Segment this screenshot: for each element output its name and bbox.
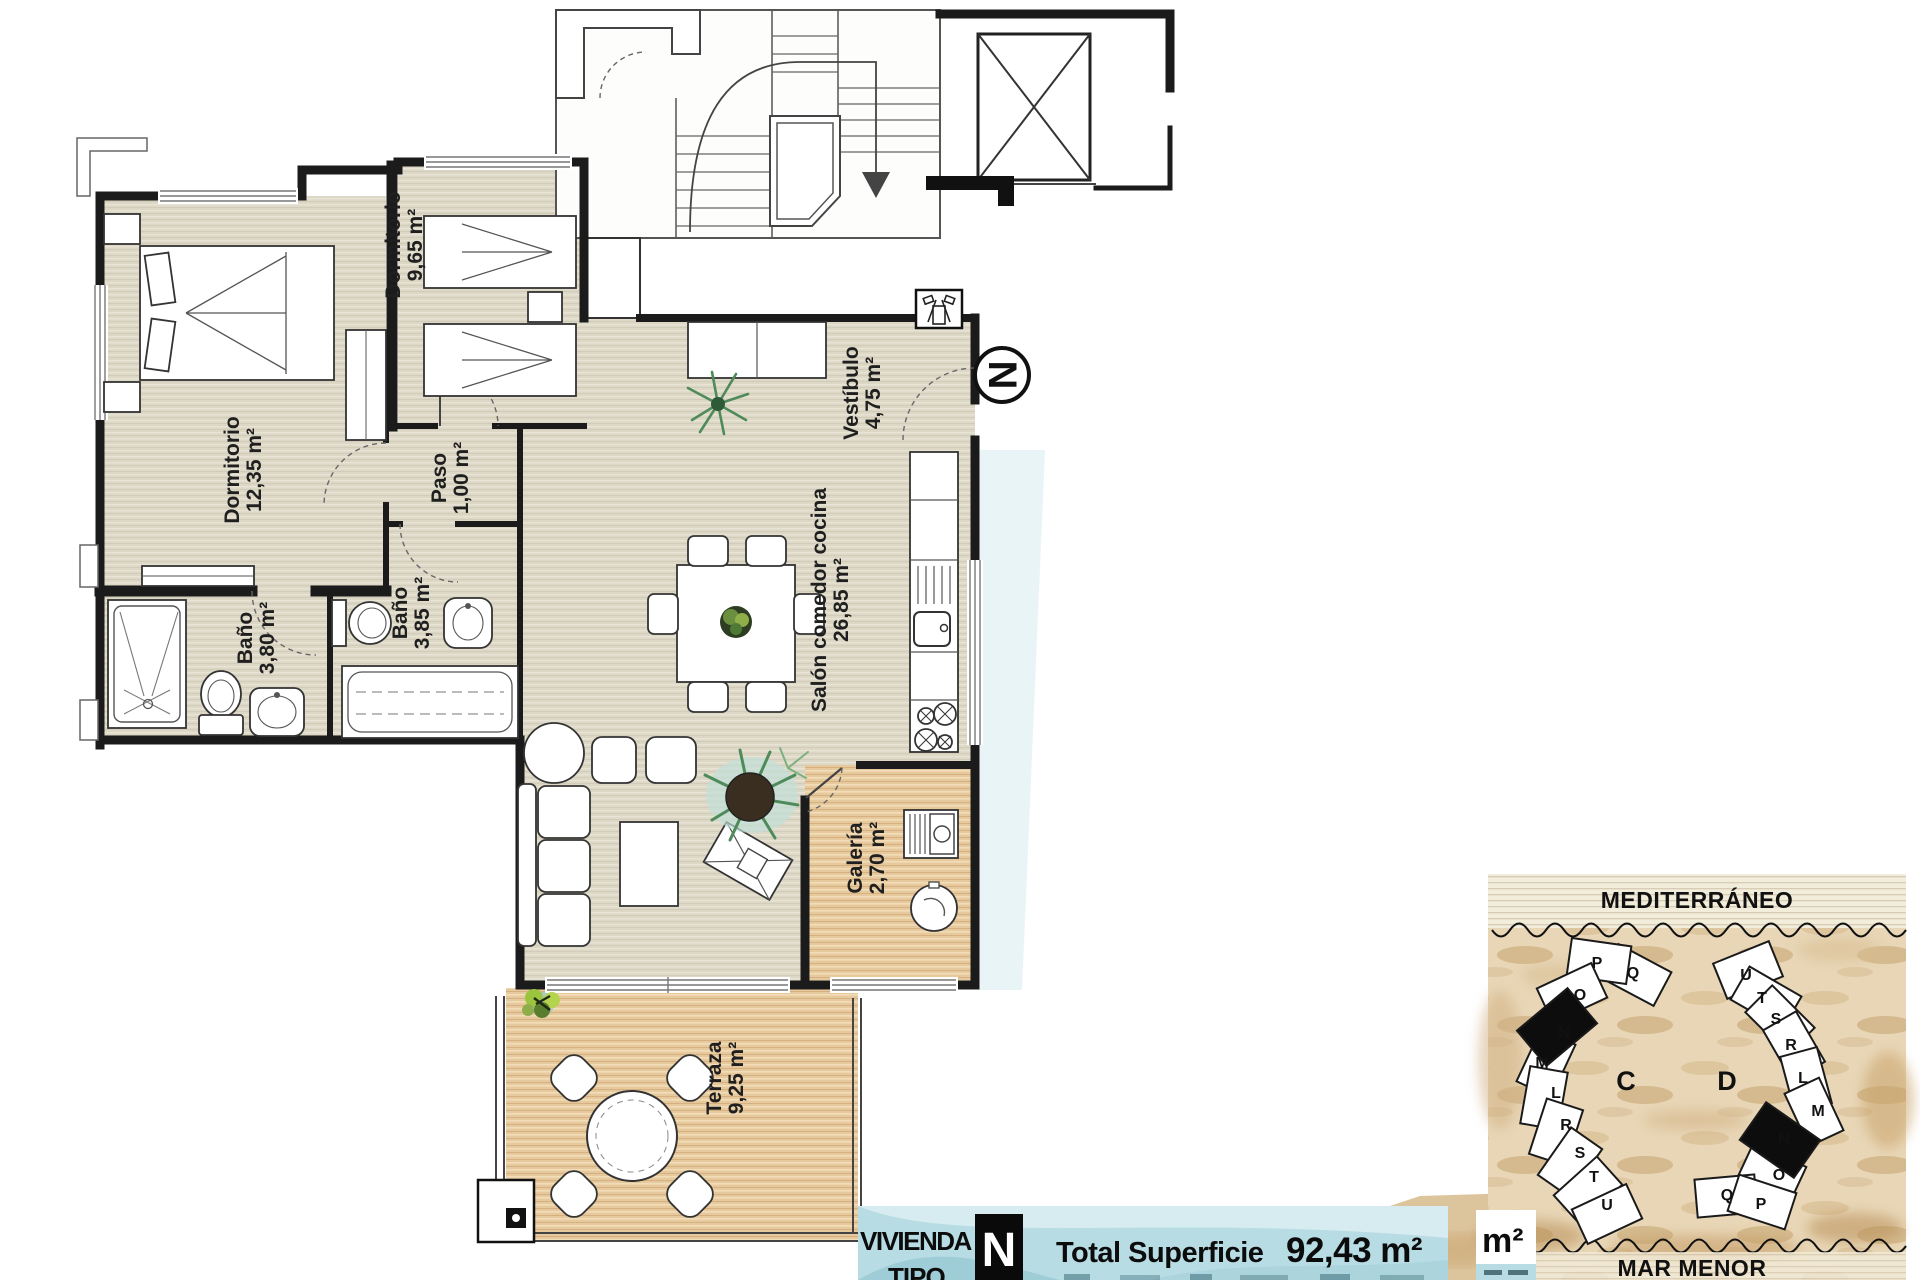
bathtub bbox=[342, 666, 518, 738]
armchair bbox=[592, 737, 636, 783]
chair bbox=[688, 536, 728, 566]
elevator bbox=[926, 14, 1170, 206]
svg-text:N: N bbox=[1558, 1025, 1570, 1042]
svg-text:T: T bbox=[1589, 1169, 1599, 1186]
svg-text:L: L bbox=[1798, 1070, 1808, 1087]
type-letter: N bbox=[982, 1224, 1017, 1277]
svg-text:Q: Q bbox=[1721, 1187, 1733, 1204]
label-master-bedroom: Dormitorio12,35 m² bbox=[221, 416, 266, 523]
label-terraza: Terraza9,25 m² bbox=[703, 1041, 748, 1114]
building-d-label: D bbox=[1717, 1066, 1737, 1096]
total-superficie-value: 92,43 m² bbox=[1286, 1231, 1422, 1270]
coffee-table bbox=[620, 822, 678, 906]
svg-text:L: L bbox=[1551, 1085, 1561, 1102]
chair bbox=[746, 536, 786, 566]
svg-text:O: O bbox=[1773, 1167, 1785, 1184]
svg-text:M: M bbox=[1535, 1055, 1548, 1072]
chair bbox=[648, 594, 678, 634]
kitchen bbox=[910, 452, 958, 752]
stair-core bbox=[556, 10, 940, 238]
site-plan: MEDITERRÁNEO MAR MENOR P Q O N M L R S T… bbox=[1475, 874, 1914, 1280]
banner-word-tipo: TIPO bbox=[888, 1262, 945, 1280]
label-vestibulo: Vestíbulo4,75 m² bbox=[840, 346, 885, 439]
side-table bbox=[524, 723, 584, 783]
terrace-table bbox=[587, 1091, 677, 1181]
nightstand bbox=[104, 382, 140, 412]
armchair bbox=[646, 737, 696, 783]
toilet bbox=[201, 671, 241, 717]
sea-label-bottom: MAR MENOR bbox=[1618, 1255, 1767, 1280]
sofa bbox=[538, 786, 590, 838]
floorplan-canvas: Dormitorio12,35 m² Dormitorio9,65 m² Pas… bbox=[0, 0, 1920, 1280]
svg-text:U: U bbox=[1740, 967, 1752, 984]
svg-text:O: O bbox=[1574, 987, 1586, 1004]
toilet-tank bbox=[332, 600, 346, 646]
banner-corner-box: m² bbox=[1476, 1210, 1536, 1280]
svg-text:P: P bbox=[1756, 1196, 1767, 1213]
type-banner: VIVIENDA TIPO N Total Superficie 92,43 m… bbox=[858, 1206, 1536, 1280]
north-letter: N bbox=[980, 361, 1024, 390]
kitchen-sink bbox=[914, 612, 950, 646]
svg-text:P: P bbox=[1592, 955, 1603, 972]
svg-text:R: R bbox=[1785, 1037, 1797, 1054]
label-bath-2: Baño3,85 m² bbox=[389, 577, 434, 649]
floorplan-page: Dormitorio12,35 m² Dormitorio9,65 m² Pas… bbox=[0, 0, 1920, 1280]
label-bath-1: Baño3,80 m² bbox=[234, 602, 279, 674]
svg-text:R: R bbox=[1560, 1117, 1572, 1134]
svg-text:U: U bbox=[1601, 1197, 1613, 1214]
svg-text:N: N bbox=[1778, 1131, 1790, 1148]
nightstand bbox=[528, 292, 562, 322]
sea-label-top: MEDITERRÁNEO bbox=[1601, 886, 1794, 913]
svg-text:S: S bbox=[1575, 1145, 1586, 1162]
total-superficie-label: Total Superficie bbox=[1056, 1237, 1264, 1269]
svg-text:M: M bbox=[1811, 1103, 1824, 1120]
building-c-label: C bbox=[1616, 1066, 1636, 1096]
water-heater bbox=[911, 885, 957, 931]
svg-text:S: S bbox=[1771, 1011, 1782, 1028]
label-galeria: Galería2,70 m² bbox=[844, 822, 889, 894]
corner-unit-text: m² bbox=[1482, 1222, 1524, 1260]
sofa-back bbox=[518, 784, 536, 946]
utility-box bbox=[916, 290, 962, 328]
floor-plan: Dormitorio12,35 m² Dormitorio9,65 m² Pas… bbox=[77, 10, 1170, 1242]
svg-text:T: T bbox=[1757, 990, 1767, 1007]
nightstand bbox=[104, 214, 140, 244]
blue-tint bbox=[978, 450, 1045, 990]
chair bbox=[746, 682, 786, 712]
chair bbox=[688, 682, 728, 712]
duct-shaft bbox=[584, 238, 640, 318]
banner-word-vivienda: VIVIENDA bbox=[860, 1226, 973, 1256]
north-indicator: N bbox=[975, 348, 1029, 402]
svg-text:Q: Q bbox=[1627, 965, 1639, 982]
